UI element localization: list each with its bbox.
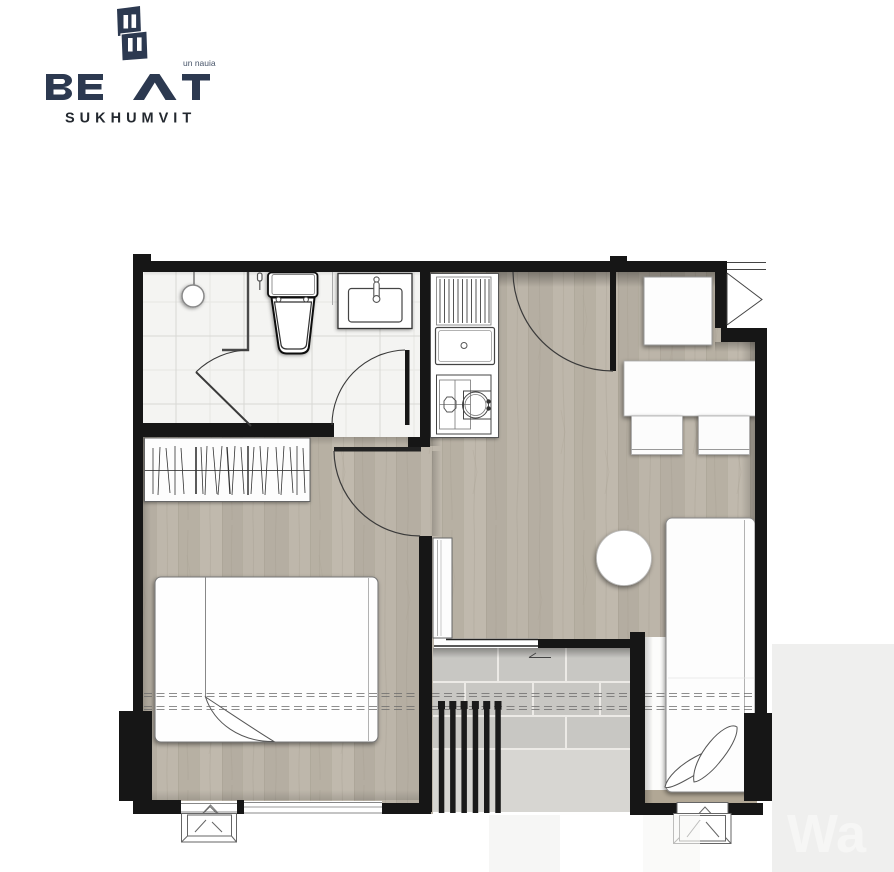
svg-text:SUKHUMVIT: SUKHUMVIT xyxy=(65,111,196,127)
svg-text:un nauia: un nauia xyxy=(183,58,216,68)
svg-text:Wa: Wa xyxy=(787,804,867,864)
